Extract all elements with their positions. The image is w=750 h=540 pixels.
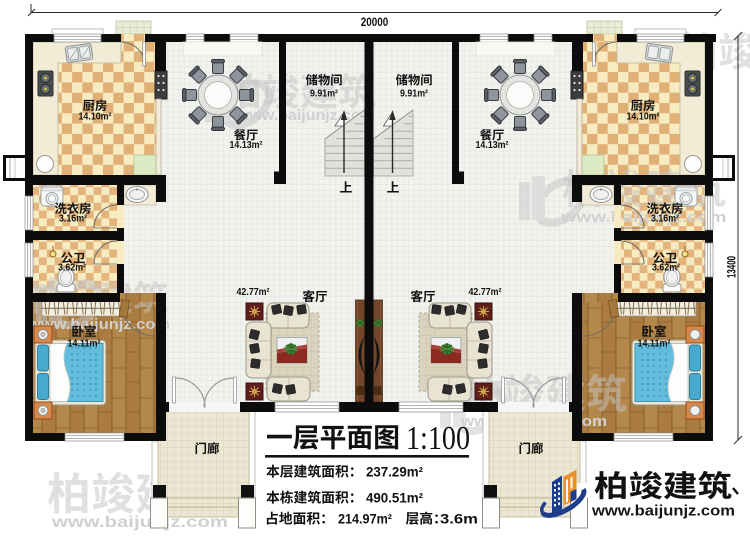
svg-text:14.13m²: 14.13m² — [476, 139, 509, 151]
svg-text:490.51m²: 490.51m² — [366, 491, 423, 506]
svg-text:3.16m²: 3.16m² — [651, 213, 679, 225]
svg-text:www.baijunjz.com: www.baijunjz.com — [591, 504, 735, 520]
svg-text:3.62m²: 3.62m² — [58, 262, 86, 274]
svg-text:14.11m²: 14.11m² — [68, 338, 101, 350]
svg-text:9.91m²: 9.91m² — [310, 88, 338, 100]
svg-text:14.10m²: 14.10m² — [627, 111, 660, 123]
svg-text:3.62m²: 3.62m² — [652, 262, 680, 274]
svg-text:214.97m²: 214.97m² — [338, 512, 392, 527]
svg-text:20000: 20000 — [361, 15, 389, 29]
svg-text:14.10m²: 14.10m² — [79, 111, 112, 123]
svg-text:14.13m²: 14.13m² — [230, 139, 263, 151]
svg-text:1:100: 1:100 — [406, 420, 470, 457]
svg-text:9.91m²: 9.91m² — [400, 88, 428, 100]
svg-text:3.6m: 3.6m — [440, 512, 478, 527]
svg-text:13400: 13400 — [727, 256, 739, 278]
svg-text:3.16m²: 3.16m² — [59, 213, 87, 225]
svg-text:42.77m²: 42.77m² — [237, 286, 270, 298]
svg-text:14.11m²: 14.11m² — [638, 338, 671, 350]
svg-text:237.29m²: 237.29m² — [366, 465, 423, 480]
svg-text:42.77m²: 42.77m² — [469, 286, 502, 298]
